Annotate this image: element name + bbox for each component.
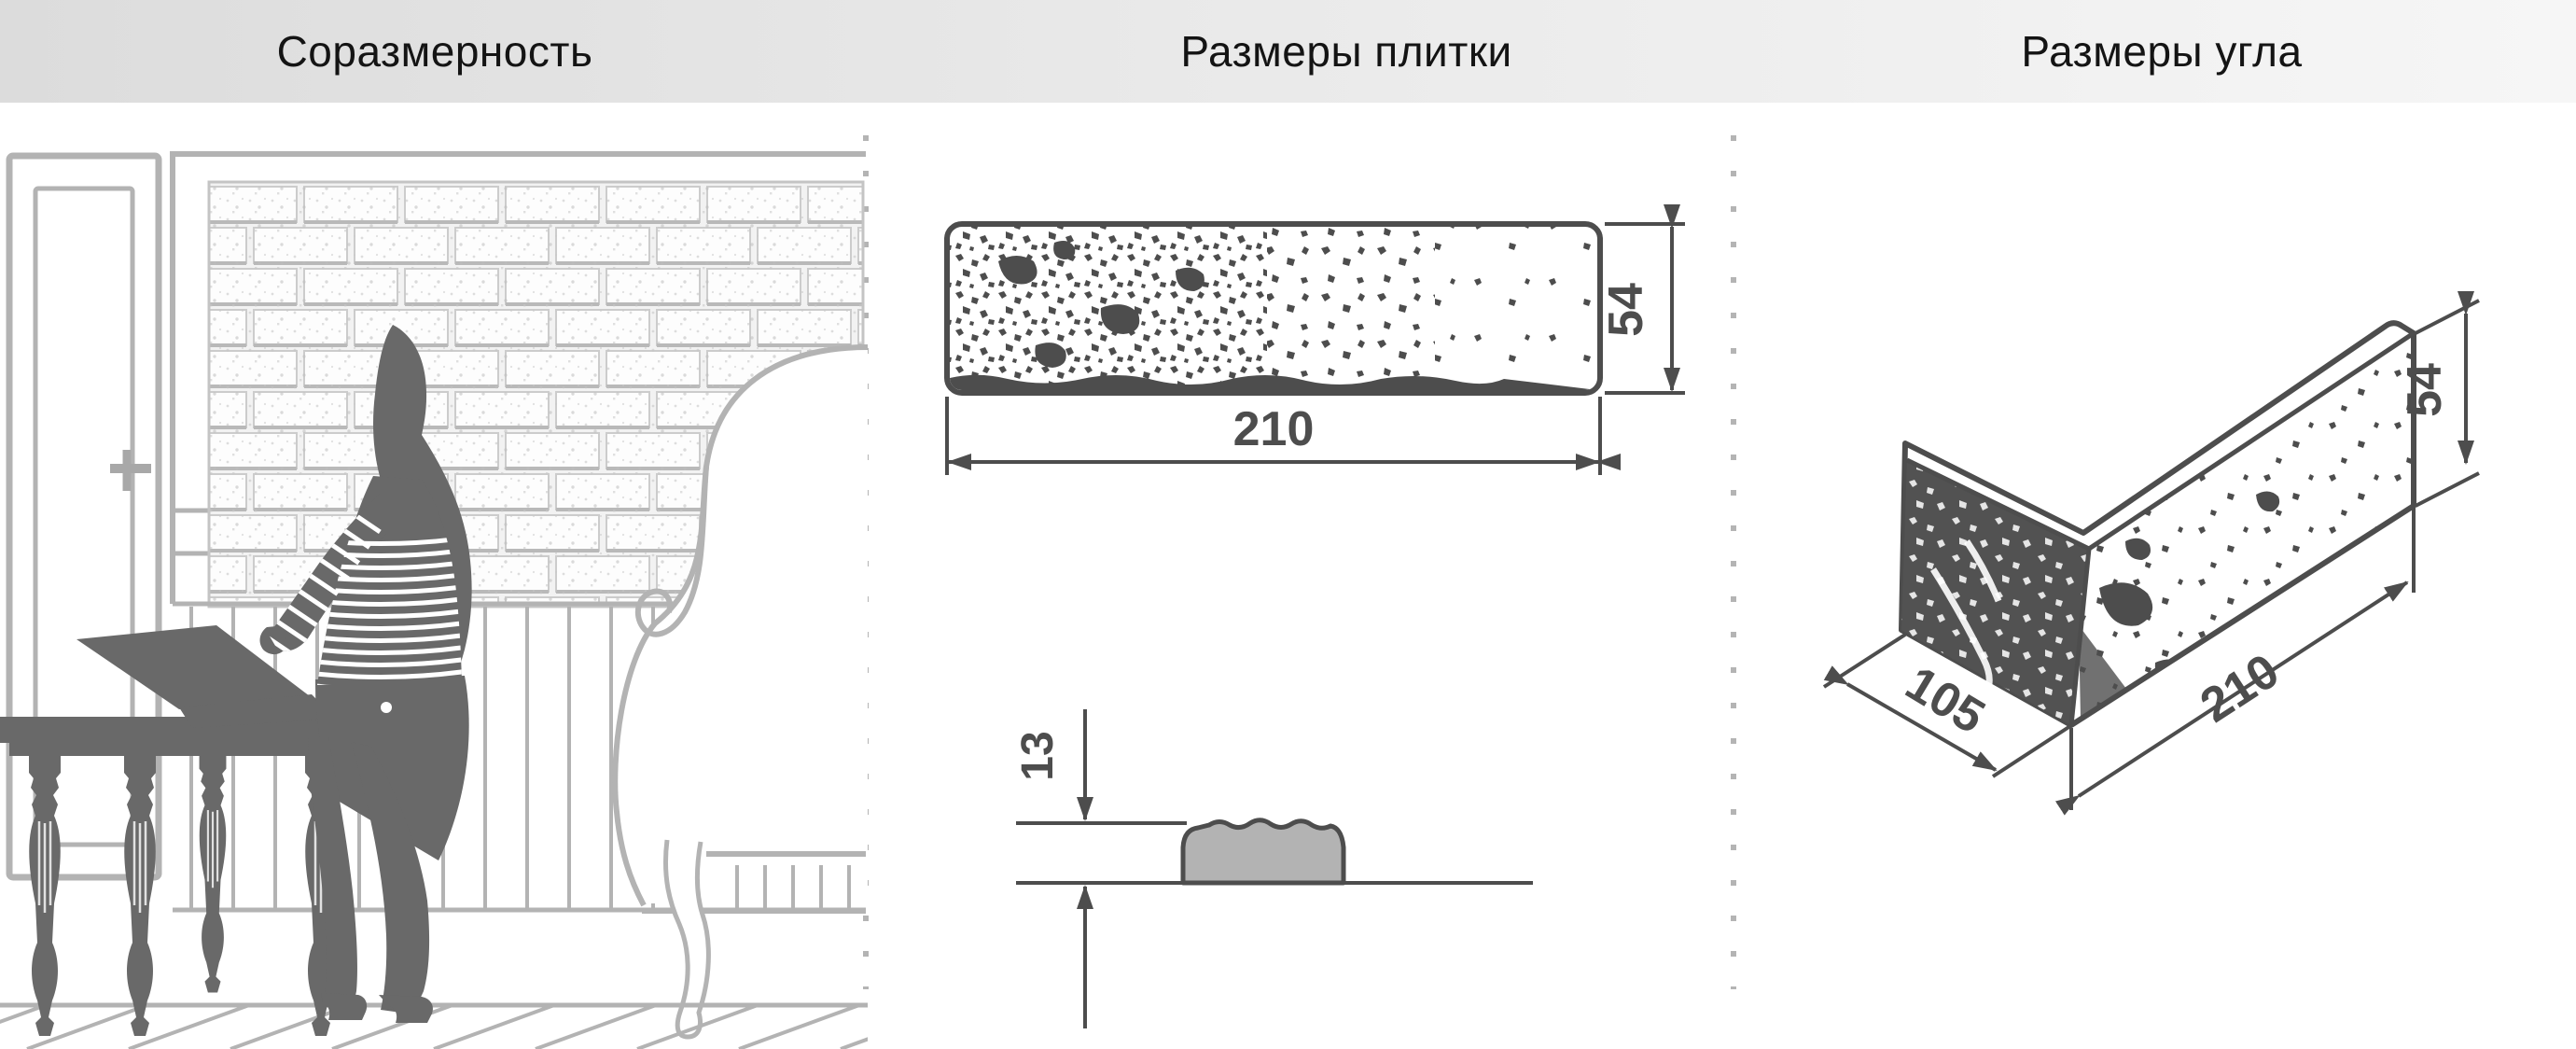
corner-dimensions-drawing: 54 210 105 — [1734, 103, 2576, 1049]
jeans-button — [381, 702, 392, 713]
corner-height-label: 54 — [2398, 363, 2452, 417]
table — [0, 717, 353, 1036]
corner-brick-drawing — [1901, 323, 2414, 725]
proportionality-scene — [0, 103, 868, 1049]
tile-width-dimension: 210 — [947, 397, 1600, 475]
door-handle — [110, 450, 151, 491]
table-leg — [124, 747, 156, 1036]
tile-height-dimension: 54 — [1599, 224, 1685, 393]
tile-face-drawing — [947, 224, 1600, 393]
section-title-tile-dimensions: Размеры плитки — [1180, 26, 1511, 77]
table-leg — [29, 747, 61, 1036]
table-leg — [200, 747, 227, 993]
tile-dimensions-drawing: 210 54 13 — [868, 103, 1734, 1049]
tile-height-label: 54 — [1599, 283, 1653, 337]
section-title-corner-dimensions: Размеры угла — [2021, 26, 2302, 77]
floor — [0, 1005, 868, 1049]
tile-width-label: 210 — [1233, 402, 1315, 456]
section-title-proportionality: Соразмерность — [277, 26, 593, 77]
tile-profile-drawing: 13 — [1013, 709, 1533, 1028]
tile-profile-shape — [1183, 820, 1344, 883]
woman-left-boot — [321, 993, 367, 1020]
corner-length-label: 210 — [2192, 644, 2289, 734]
page: Соразмерность Размеры плитки Размеры угл… — [0, 0, 2576, 1049]
tile-thickness-label: 13 — [1013, 731, 1063, 780]
